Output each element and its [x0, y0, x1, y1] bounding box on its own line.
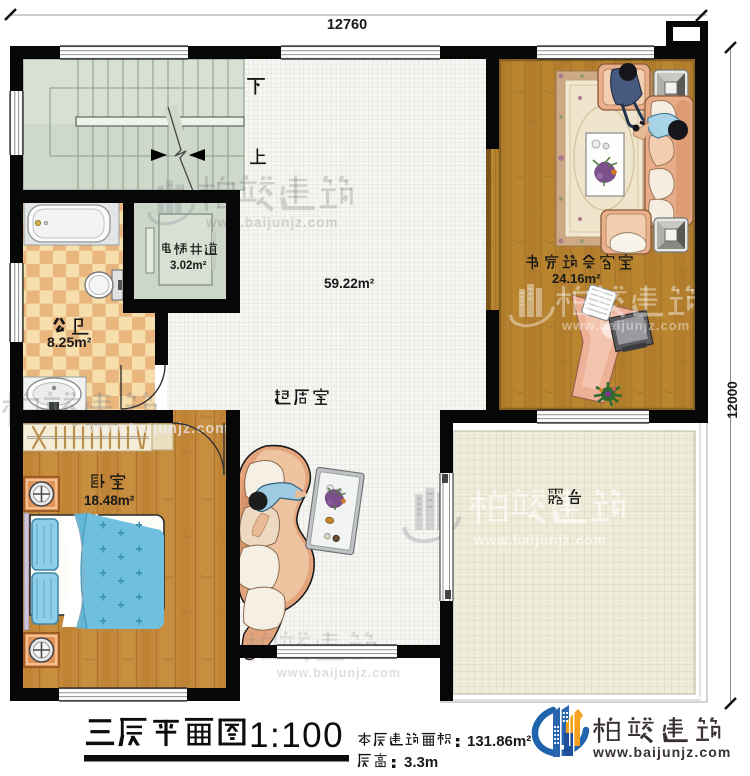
svg-text:131.86m²: 131.86m² — [467, 733, 531, 750]
svg-text:www.baijunjz.com: www.baijunjz.com — [473, 533, 607, 548]
svg-text:www.baijunjz.com: www.baijunjz.com — [592, 744, 731, 760]
svg-text:3.02m²: 3.02m² — [170, 260, 207, 272]
svg-text:59.22m²: 59.22m² — [324, 276, 375, 291]
svg-text:18.48m²: 18.48m² — [84, 493, 135, 508]
svg-text:www.baijunjz.com: www.baijunjz.com — [87, 421, 229, 437]
svg-text:www.baijunjz.com: www.baijunjz.com — [561, 318, 690, 333]
svg-text:12760: 12760 — [327, 17, 367, 33]
svg-text:12000: 12000 — [725, 381, 740, 419]
svg-text:24.16m²: 24.16m² — [552, 271, 601, 286]
svg-text:www.baijunjz.com: www.baijunjz.com — [276, 666, 401, 680]
svg-text:3.3m: 3.3m — [404, 754, 438, 771]
svg-text:8.25m²: 8.25m² — [47, 334, 92, 350]
svg-text:www.baijunjz.com: www.baijunjz.com — [205, 215, 339, 230]
svg-text:1:100: 1:100 — [249, 716, 344, 755]
